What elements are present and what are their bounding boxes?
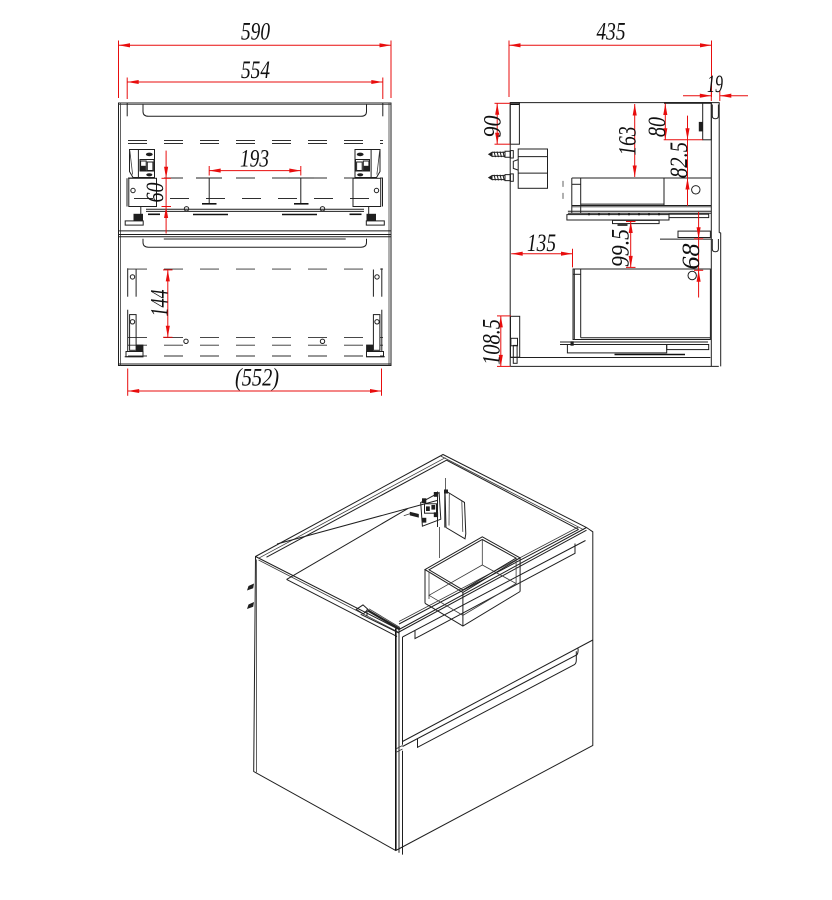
svg-text:90: 90 bbox=[480, 115, 507, 137]
svg-text:163: 163 bbox=[615, 127, 642, 156]
svg-text:80: 80 bbox=[644, 117, 671, 137]
svg-text:435: 435 bbox=[597, 19, 626, 46]
svg-text:19: 19 bbox=[707, 71, 723, 98]
svg-text:135: 135 bbox=[527, 230, 556, 257]
svg-text:68: 68 bbox=[678, 243, 705, 270]
svg-text:144: 144 bbox=[147, 290, 174, 317]
svg-text:108.5: 108.5 bbox=[479, 319, 506, 365]
svg-text:590: 590 bbox=[241, 19, 270, 46]
svg-text:82.5: 82.5 bbox=[666, 142, 693, 178]
svg-text:554: 554 bbox=[241, 57, 270, 84]
svg-text:99.5: 99.5 bbox=[608, 229, 635, 267]
svg-text:(552): (552) bbox=[235, 365, 279, 392]
svg-text:193: 193 bbox=[240, 146, 269, 173]
svg-text:60: 60 bbox=[142, 182, 169, 202]
